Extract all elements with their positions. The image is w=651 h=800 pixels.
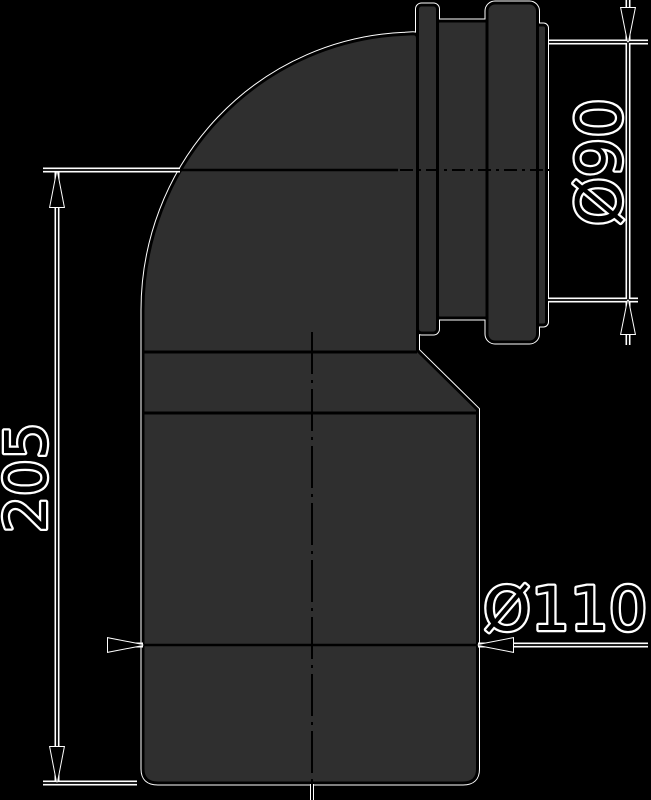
- dim-arrow-right-icon: [108, 638, 143, 652]
- dimension-height-label: 205: [0, 422, 60, 533]
- socket-end-cap: [487, 3, 538, 342]
- drawing-canvas: 205 Ø90 Ø110: [0, 0, 651, 800]
- dimension-outlet-diameter-label: Ø110: [483, 574, 647, 645]
- dim-arrow-up2-icon: [621, 300, 635, 334]
- dim-arrow-up-icon: [50, 172, 64, 207]
- dim-arrow-down2-icon: [621, 8, 635, 42]
- dimension-socket-diameter-label: Ø90: [563, 98, 636, 226]
- technical-drawing: 205 Ø90 Ø110: [0, 0, 651, 800]
- dim-arrow-down-icon: [50, 747, 64, 782]
